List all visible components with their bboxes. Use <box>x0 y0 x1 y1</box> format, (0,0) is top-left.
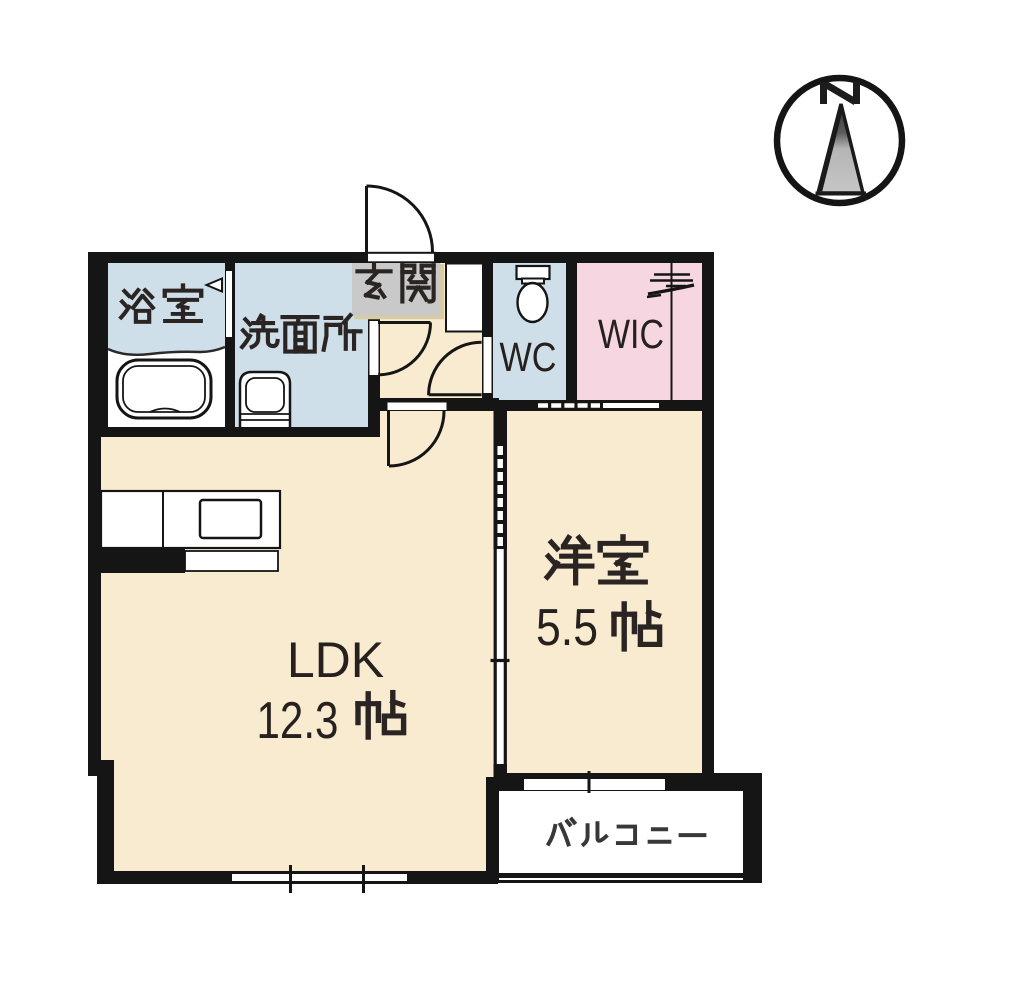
svg-text:WIC: WIC <box>598 311 664 357</box>
svg-text:WC: WC <box>500 334 557 380</box>
svg-text:5.5: 5.5 <box>536 599 598 657</box>
svg-text:LDK: LDK <box>287 632 384 688</box>
svg-text:12.3: 12.3 <box>257 692 339 750</box>
